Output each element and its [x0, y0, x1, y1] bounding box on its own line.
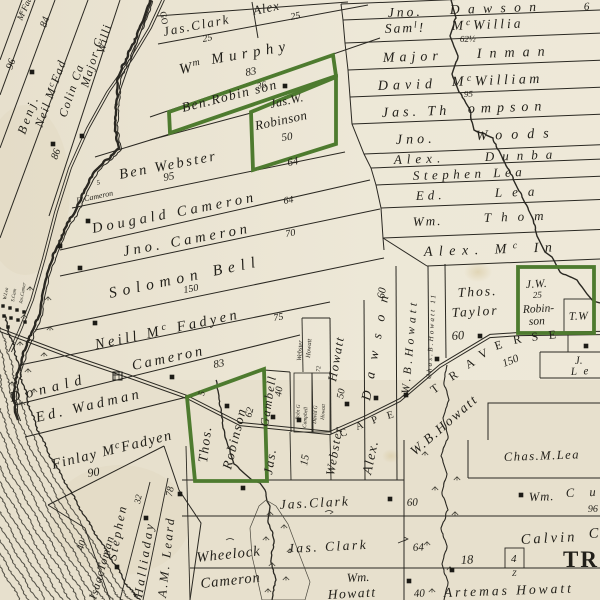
- svg-text:C: C: [588, 525, 599, 542]
- svg-text:60: 60: [407, 496, 419, 509]
- svg-text:Dunba: Dunba: [484, 146, 561, 164]
- svg-text:40: 40: [414, 587, 426, 600]
- svg-text:C u: C u: [566, 485, 600, 500]
- svg-text:son: son: [529, 315, 546, 328]
- svg-text:75: 75: [273, 311, 285, 324]
- svg-text:Saml!: Saml!: [385, 20, 426, 36]
- svg-text:90: 90: [86, 464, 100, 480]
- svg-text:Wm.: Wm.: [346, 570, 369, 585]
- svg-text:Howatt: Howatt: [305, 338, 313, 359]
- svg-text:Woods: Woods: [476, 126, 558, 144]
- svg-text:95: 95: [464, 89, 474, 99]
- svg-text:Jno.: Jno.: [396, 132, 436, 148]
- svg-text:Chas.M.Lea: Chas.M.Lea: [504, 447, 581, 464]
- svg-text:Taylor: Taylor: [451, 303, 498, 320]
- svg-text:50: 50: [281, 130, 294, 143]
- svg-text:25: 25: [533, 290, 543, 300]
- svg-text:96: 96: [588, 504, 598, 515]
- svg-text:McWillia: McWillia: [451, 16, 524, 34]
- svg-text:Thom: Thom: [484, 208, 554, 225]
- svg-text:78: 78: [164, 486, 177, 498]
- svg-text:Webster: Webster: [296, 340, 304, 362]
- svg-text:Robt G: Robt G: [295, 404, 302, 421]
- svg-text:72: 72: [316, 366, 322, 372]
- svg-text:ompson: ompson: [468, 99, 548, 117]
- svg-text:25: 25: [289, 10, 301, 23]
- svg-text:Major: Major: [382, 49, 443, 66]
- svg-text:25: 25: [201, 32, 213, 45]
- svg-text:Howatt: Howatt: [326, 584, 376, 600]
- svg-text:L e: L e: [570, 365, 591, 378]
- svg-text:T.W: T.W: [569, 310, 590, 323]
- svg-text:Calvin: Calvin: [520, 529, 577, 548]
- svg-text:Z: Z: [512, 569, 517, 578]
- svg-text:Wm.: Wm.: [529, 489, 555, 504]
- svg-text:Inman: Inman: [476, 44, 553, 62]
- svg-text:62½: 62½: [460, 33, 476, 44]
- svg-text:4: 4: [511, 553, 517, 565]
- svg-text:50: 50: [335, 388, 348, 400]
- svg-text:Lea: Lea: [494, 183, 545, 200]
- svg-text:6: 6: [584, 1, 590, 13]
- svg-text:David: David: [377, 77, 438, 94]
- svg-text:Ed.: Ed.: [415, 187, 446, 203]
- svg-text:TR: TR: [563, 547, 599, 572]
- svg-text:18: 18: [460, 552, 474, 567]
- svg-text:Jas. Th: Jas. Th: [382, 104, 451, 121]
- svg-text:60: 60: [451, 328, 465, 343]
- svg-text:Howatt: Howatt: [320, 403, 327, 421]
- svg-text:Wm.: Wm.: [413, 213, 443, 229]
- svg-text:70: 70: [285, 227, 297, 240]
- svg-text:E: E: [548, 327, 557, 342]
- svg-text:Jno.: Jno.: [388, 4, 423, 20]
- svg-text:Thos.: Thos.: [457, 283, 497, 300]
- svg-text:Alex.: Alex.: [393, 150, 446, 167]
- svg-text:64: 64: [283, 194, 295, 207]
- svg-text:40: 40: [273, 386, 285, 398]
- svg-text:Robin-: Robin-: [522, 302, 555, 316]
- svg-text:64: 64: [413, 541, 425, 554]
